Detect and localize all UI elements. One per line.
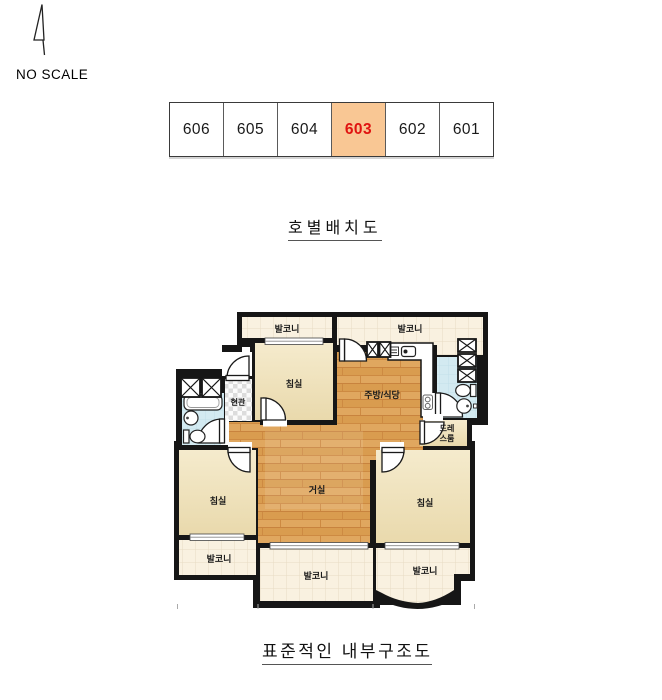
label-bedroom-right: 침실 (417, 497, 434, 508)
toilet-right-icon (456, 385, 476, 397)
unit-cell-606: 606 (170, 103, 224, 156)
label-bedroom-top: 침실 (286, 378, 303, 389)
label-balcony-top-right: 발코니 (398, 323, 423, 334)
unit-cell-601: 601 (440, 103, 493, 156)
shaft-kitchen-icon (367, 342, 391, 357)
north-arrow-icon (32, 3, 48, 57)
living-floor-highlight (265, 431, 363, 509)
unit-cell-603-highlighted: 603 (332, 103, 386, 156)
no-scale-label: NO SCALE (16, 67, 88, 82)
window-living (270, 543, 368, 550)
label-living: 거실 (309, 484, 326, 495)
cooktop-icon (423, 395, 433, 410)
label-bedroom-left: 침실 (210, 495, 227, 506)
label-balcony-bottom-right: 발코니 (413, 565, 438, 576)
label-balcony-bottom-left: 발코니 (207, 553, 232, 564)
label-balcony-top-left: 발코니 (275, 323, 300, 334)
unit-layout-title: 호별배치도 (288, 214, 382, 238)
label-dressroom-1: 드레 (440, 423, 455, 433)
page: NO SCALE 606 605 604 603 602 601 호별배치도 (0, 0, 662, 700)
floor-plan: 발코니 발코니 침실 주방/식당 현관 드레 스룸 거실 침실 침실 발코니 발… (170, 303, 496, 615)
unit-cell-602: 602 (386, 103, 440, 156)
unit-number-table: 606 605 604 603 602 601 (169, 102, 494, 157)
floor-plan-title: 표준적인 내부구조도 (262, 637, 432, 662)
shaft-right-icon (458, 339, 476, 382)
label-entrance: 현관 (231, 397, 246, 407)
kitchen-sink-icon (402, 347, 416, 357)
toilet-left-icon (184, 430, 206, 443)
window-bedroom-left (190, 534, 244, 541)
window-bedroom-right (385, 543, 459, 550)
unit-cell-605: 605 (224, 103, 278, 156)
unit-cell-604: 604 (278, 103, 332, 156)
window-bedroom-top (265, 338, 323, 345)
label-balcony-bottom-center: 발코니 (304, 570, 329, 581)
label-dressroom-2: 스룸 (440, 433, 455, 443)
label-kitchen-dining: 주방/식당 (364, 389, 400, 400)
sink-left-icon (184, 411, 198, 425)
